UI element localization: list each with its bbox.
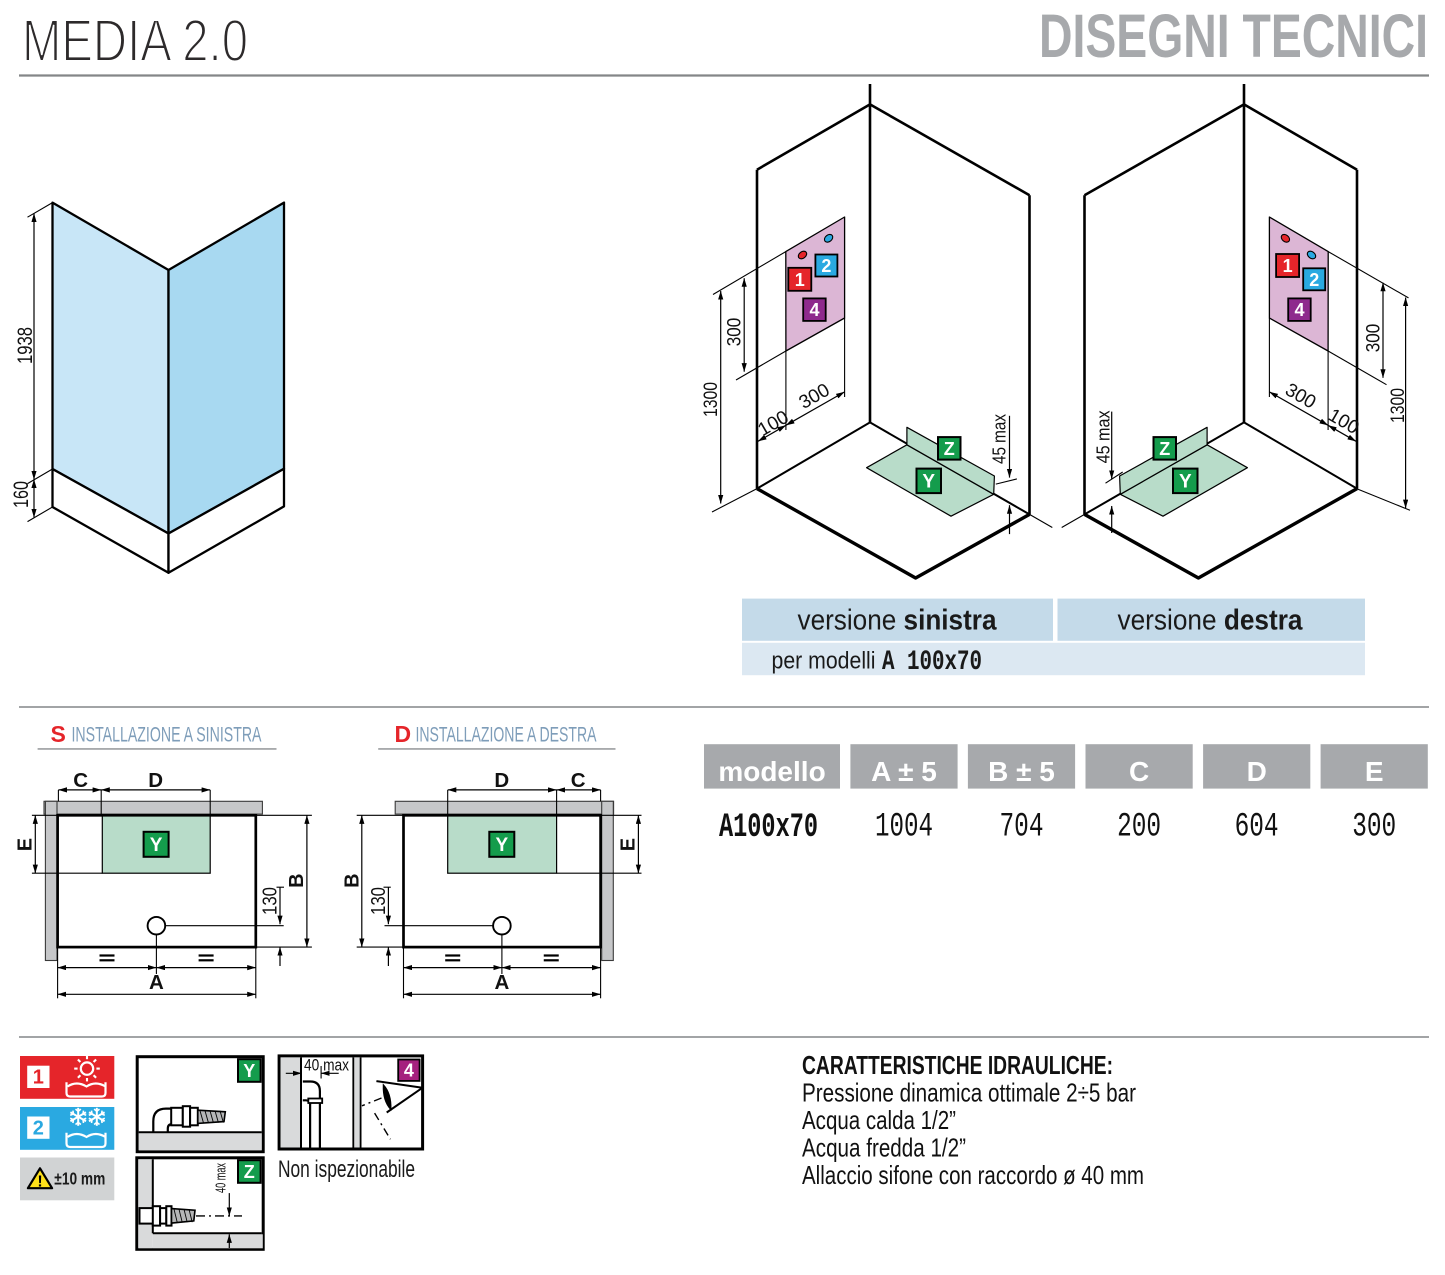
- svg-text:Y: Y: [495, 835, 508, 856]
- svg-text:300: 300: [724, 318, 746, 347]
- svg-text:2: 2: [821, 256, 831, 276]
- svg-text:B ± 5: B ± 5: [988, 756, 1055, 787]
- svg-text:C: C: [1129, 756, 1149, 787]
- svg-text:E: E: [15, 838, 37, 851]
- svg-text:Z: Z: [1159, 439, 1170, 459]
- svg-text:INSTALLAZIONE A SINISTRA: INSTALLAZIONE A SINISTRA: [72, 724, 262, 747]
- svg-text:S: S: [51, 721, 66, 747]
- svg-text:Y: Y: [150, 835, 163, 856]
- svg-text:130: 130: [259, 887, 281, 915]
- svg-text:E: E: [618, 838, 640, 851]
- svg-text:40 max: 40 max: [213, 1163, 230, 1193]
- svg-text:MEDIA 2.0: MEDIA 2.0: [22, 8, 248, 74]
- svg-text:A100x70: A100x70: [719, 809, 818, 847]
- svg-text:A: A: [149, 971, 164, 994]
- svg-text:versione destra: versione destra: [1118, 605, 1304, 637]
- svg-text:2: 2: [1309, 270, 1319, 290]
- svg-text:D: D: [395, 721, 412, 747]
- svg-text:1300: 1300: [1387, 388, 1409, 423]
- svg-text:D: D: [148, 769, 163, 792]
- svg-text:±10 mm: ±10 mm: [54, 1168, 105, 1188]
- svg-text:!: !: [37, 1174, 42, 1191]
- svg-text:Z: Z: [944, 439, 955, 459]
- svg-text:B: B: [341, 873, 363, 887]
- svg-text:300: 300: [1363, 324, 1385, 353]
- svg-text:4: 4: [1294, 300, 1304, 320]
- svg-text:4: 4: [404, 1061, 414, 1081]
- svg-text:A: A: [494, 971, 509, 994]
- svg-text:B: B: [286, 873, 308, 887]
- svg-text:D: D: [1247, 756, 1267, 787]
- svg-text:300: 300: [1352, 809, 1396, 847]
- svg-text:45 max: 45 max: [1093, 410, 1114, 464]
- svg-text:200: 200: [1117, 809, 1161, 847]
- svg-text:C: C: [571, 769, 586, 792]
- svg-text:A ± 5: A ± 5: [871, 756, 937, 787]
- svg-text:Non ispezionabile: Non ispezionabile: [278, 1156, 415, 1183]
- svg-text:2: 2: [33, 1117, 44, 1139]
- svg-text:E: E: [1365, 756, 1384, 787]
- svg-text:C: C: [73, 769, 88, 792]
- svg-text:Z: Z: [244, 1162, 255, 1182]
- svg-text:Allaccio sifone con raccordo ø: Allaccio sifone con raccordo ø 40 mm: [802, 1160, 1144, 1190]
- svg-text:versione sinistra: versione sinistra: [798, 605, 998, 637]
- svg-text:1004: 1004: [875, 809, 933, 847]
- svg-text:Y: Y: [1179, 472, 1192, 493]
- svg-text:130: 130: [368, 887, 390, 915]
- svg-text:604: 604: [1235, 809, 1279, 847]
- svg-text:1: 1: [33, 1067, 44, 1089]
- svg-text:704: 704: [1000, 809, 1044, 847]
- svg-text:4: 4: [809, 300, 819, 320]
- svg-text:1300: 1300: [700, 382, 722, 417]
- svg-text:Acqua calda 1/2”: Acqua calda 1/2”: [802, 1105, 956, 1135]
- svg-text:1938: 1938: [14, 327, 37, 364]
- svg-text:modello: modello: [718, 756, 825, 787]
- svg-text:1: 1: [1283, 256, 1293, 276]
- svg-text:45 max: 45 max: [989, 413, 1010, 464]
- svg-text:Y: Y: [922, 472, 935, 493]
- svg-text:D: D: [494, 769, 509, 792]
- svg-text:Acqua fredda 1/2”: Acqua fredda 1/2”: [802, 1133, 966, 1163]
- svg-text:40 max: 40 max: [304, 1057, 350, 1075]
- svg-text:A 100x70: A 100x70: [882, 647, 982, 678]
- svg-text:Pressione dinamica ottimale 2÷: Pressione dinamica ottimale 2÷5 bar: [802, 1078, 1136, 1108]
- svg-text:DISEGNI TECNICI: DISEGNI TECNICI: [1039, 2, 1428, 70]
- svg-text:1: 1: [795, 270, 805, 290]
- svg-text:INSTALLAZIONE A DESTRA: INSTALLAZIONE A DESTRA: [416, 724, 597, 747]
- svg-text:160: 160: [10, 481, 33, 508]
- svg-text:CARATTERISTICHE IDRAULICHE:: CARATTERISTICHE IDRAULICHE:: [802, 1050, 1113, 1080]
- svg-text:Y: Y: [243, 1061, 255, 1081]
- svg-text:per modelli: per modelli: [772, 648, 876, 675]
